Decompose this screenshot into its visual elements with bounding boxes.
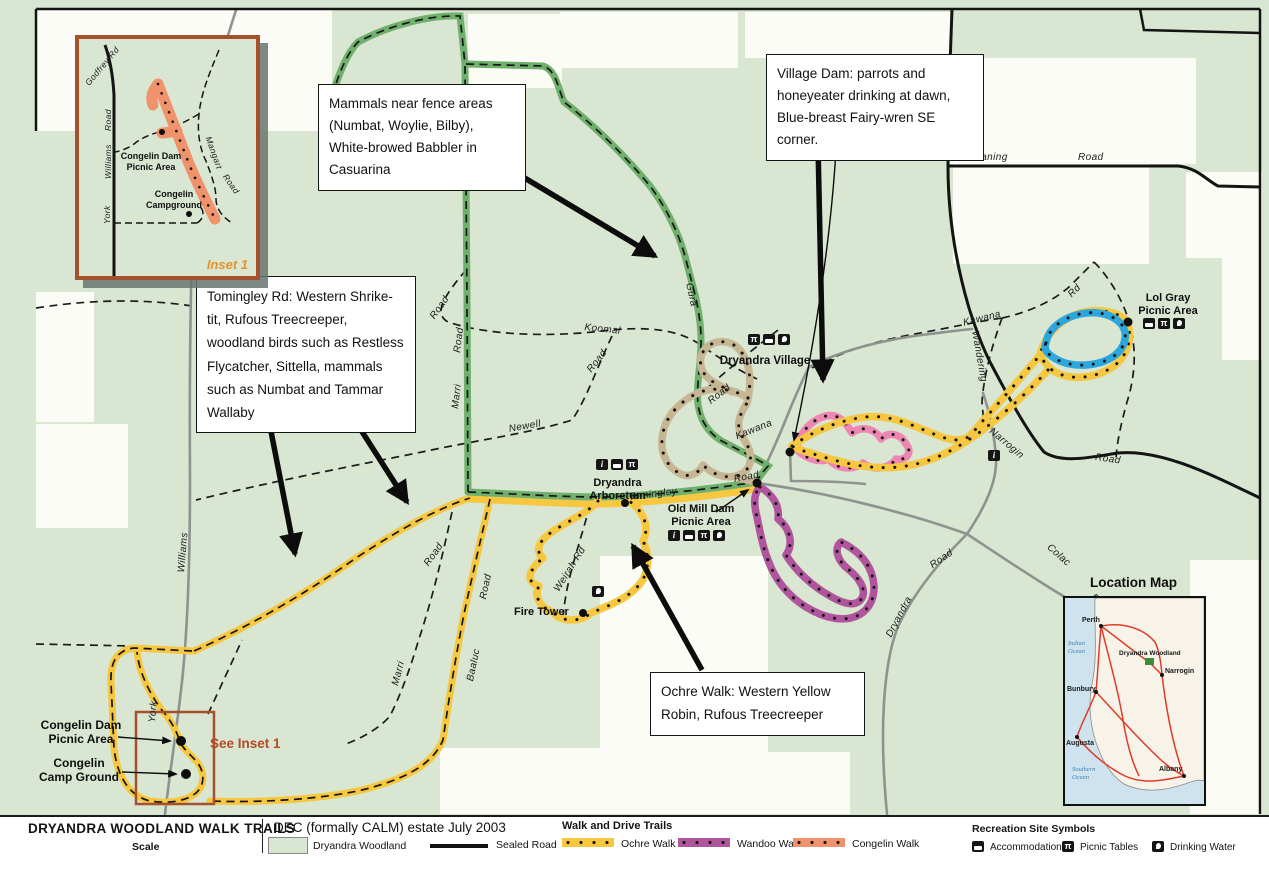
drinking-water-icon (592, 586, 604, 597)
ochre-swatch (562, 838, 614, 847)
drinking-water-icon (713, 530, 725, 541)
locmap-dryandra: Dryandra Woodland (1119, 650, 1181, 657)
congelin-swatch (793, 838, 845, 847)
info-symbol (988, 450, 1000, 461)
drinking-water-icon (778, 334, 790, 345)
legend-divider (262, 819, 263, 853)
place-congelin-camp: Congelin Camp Ground (20, 756, 138, 784)
place-old-mill-dam: Old Mill Dam Picnic Area (645, 503, 757, 529)
annotation-tomingley: Tomingley Rd: Western Shrike-tit, Rufous… (196, 276, 416, 433)
dryandra-trail-map: Koomal Road Road Newell Marri Road Gura … (0, 0, 1269, 869)
accommodation-icon (972, 841, 984, 852)
accommodation-icon (1143, 318, 1155, 329)
accommodation-label: Accommodation (990, 842, 1062, 853)
village-symbols (748, 334, 790, 345)
drinking-water-label: Drinking Water (1170, 842, 1236, 853)
annotation-ochre-walk: Ochre Walk: Western Yellow Robin, Rufous… (650, 672, 865, 736)
picnic-tables-icon (698, 530, 710, 541)
drinking-water-icon (1173, 318, 1185, 329)
sealed-road-swatch (430, 844, 488, 848)
road-label-york: York (147, 700, 160, 723)
annotation-mammals: Mammals near fence areas (Numbat, Woylie… (318, 84, 526, 191)
picnic-tables-icon (1062, 841, 1074, 852)
symbols-header: Recreation Site Symbols (972, 823, 1095, 835)
scale-label: Scale (132, 841, 159, 853)
old-mill-symbols (668, 530, 725, 541)
picnic-tables-label: Picnic Tables (1080, 842, 1138, 853)
locmap-augusta: Augusta (1066, 740, 1094, 748)
congelin-label: Congelin Walk (852, 838, 919, 850)
location-map: Perth Indian Ocean Dryandra Woodland Nar… (1063, 596, 1206, 806)
legend: DRYANDRA WOODLAND WALK TRAILS Scale DEC … (0, 815, 1269, 869)
arboretum-symbols (596, 459, 638, 470)
info-icon (668, 530, 680, 541)
accommodation-icon (611, 459, 623, 470)
see-inset-label: See Inset 1 (210, 736, 281, 752)
loop-water-symbol (592, 586, 604, 597)
road-label-yomaning-road: Road (1078, 152, 1104, 163)
picnic-tables-icon (1158, 318, 1170, 329)
picnic-tables-icon (748, 334, 760, 345)
place-dryandra-arboretum: Dryandra Arboretum (575, 477, 660, 503)
accommodation-icon (763, 334, 775, 345)
info-icon (988, 450, 1000, 461)
accommodation-icon (683, 530, 695, 541)
sealed-road-label: Sealed Road (496, 839, 557, 851)
place-congelin-dam: Congelin Dam Picnic Area (25, 718, 137, 746)
map-title: DRYANDRA WOODLAND WALK TRAILS (28, 821, 295, 836)
locmap-southern-ocean: Southern Ocean (1072, 766, 1095, 782)
inset-road-york: York (102, 205, 112, 224)
location-map-title: Location Map (1090, 575, 1177, 590)
estate-note: DEC (formally CALM) estate July 2003 (274, 820, 506, 835)
place-dryandra-village: Dryandra Village (700, 355, 830, 369)
inset-congelin-camp: Congelin Campground (126, 189, 222, 210)
ochre-label: Ochre Walk (621, 838, 675, 850)
inset-map: Godfrey Rd Road Williams York Mangart Ro… (75, 35, 260, 280)
locmap-narrogin: Narrogin (1165, 668, 1194, 676)
place-fire-tower: Fire Tower (514, 606, 569, 619)
woodland-label: Dryandra Woodland (313, 840, 406, 852)
inset-title: Inset 1 (207, 257, 248, 272)
place-lol-gray: Lol Gray Picnic Area (1128, 292, 1208, 318)
wandoo-swatch (678, 838, 730, 847)
woodland-swatch (268, 837, 308, 854)
drinking-water-icon (1152, 841, 1164, 852)
locmap-perth: Perth (1082, 617, 1100, 625)
locmap-indian-ocean: Indian Ocean (1068, 640, 1085, 656)
wandoo-label: Wandoo Walk (737, 838, 802, 850)
inset-congelin-dam: Congelin Dam Picnic Area (103, 151, 199, 172)
lol-gray-symbols (1143, 318, 1185, 329)
locmap-bunbury: Bunbury (1067, 686, 1096, 694)
trails-header: Walk and Drive Trails (562, 820, 672, 832)
inset-road-road: Road (103, 109, 113, 131)
picnic-tables-icon (626, 459, 638, 470)
locmap-albany: Albany (1159, 766, 1182, 774)
info-icon (596, 459, 608, 470)
annotation-village-dam: Village Dam: parrots and honeyeater drin… (766, 54, 984, 161)
